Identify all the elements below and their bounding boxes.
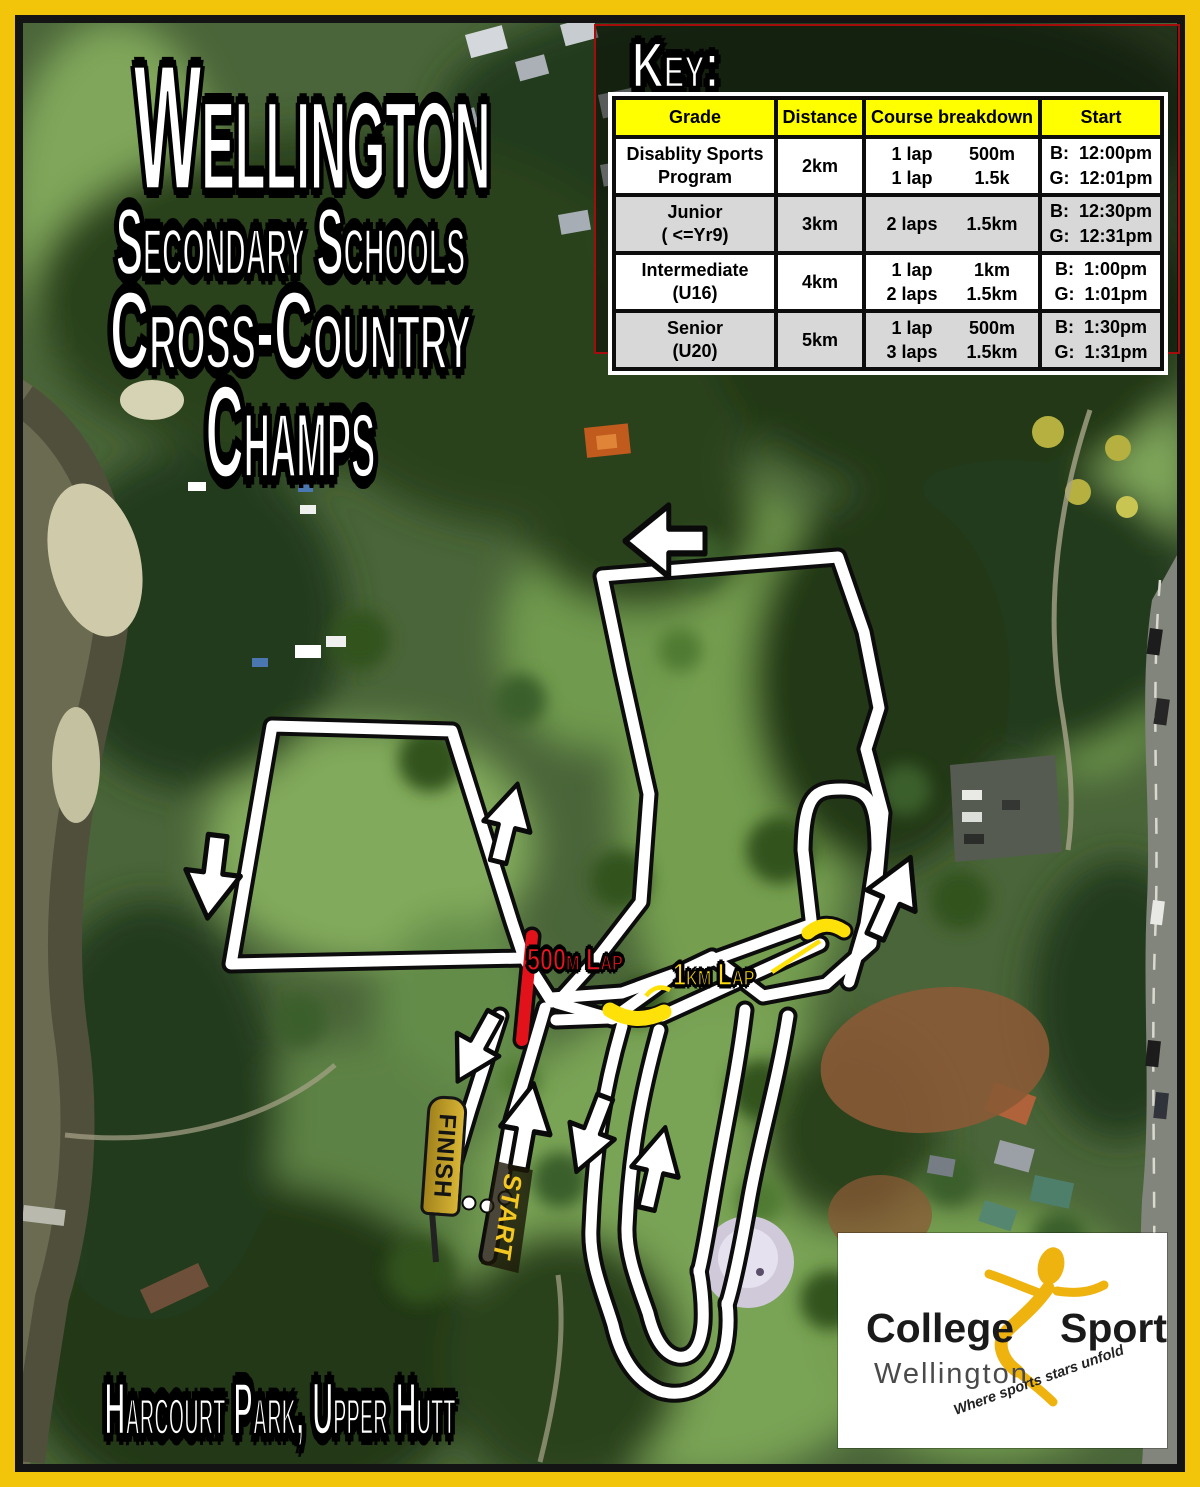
title-line-4: Champs — [106, 358, 475, 508]
autumn-tree — [1116, 496, 1138, 518]
key-table-row: Junior( <=Yr9)3km2 laps1.5kmB:12:30pmG:1… — [616, 197, 1160, 251]
distance-cell: 4km — [778, 255, 862, 309]
logo-word-sport: Sport — [1060, 1305, 1167, 1351]
lap-1km-segment — [808, 925, 844, 933]
parking-lot — [950, 755, 1062, 862]
logo-word-college: College — [866, 1305, 1014, 1351]
breakdown-cell: 2 laps1.5km — [866, 197, 1038, 251]
column-header-breakdown: Course breakdown — [866, 100, 1038, 135]
breakdown-cell: 1 lap1km2 laps1.5km — [866, 255, 1038, 309]
breakdown-cell: 1 lap500m1 lap1.5k — [866, 139, 1038, 193]
distance-cell: 5km — [778, 313, 862, 367]
grade-cell: Senior(U20) — [616, 313, 774, 367]
distance-cell: 3km — [778, 197, 862, 251]
key-table: Grade Distance Course breakdown Start Di… — [608, 92, 1168, 375]
autumn-tree — [1032, 416, 1064, 448]
lap-1km-label: 1km Lap — [673, 956, 755, 993]
distance-cell: 2km — [778, 139, 862, 193]
lap-500-label: 500m Lap — [527, 941, 623, 978]
lap-1km-segment — [610, 1010, 664, 1019]
key-table-row: Disablity SportsProgram2km1 lap500m1 lap… — [616, 139, 1160, 193]
grade-cell: Intermediate(U16) — [616, 255, 774, 309]
grade-cell: Disablity SportsProgram — [616, 139, 774, 193]
venue-name: Harcourt Park, Upper Hutt — [104, 1366, 435, 1452]
start-cell: B:12:00pmG:12:01pm — [1042, 139, 1160, 193]
start-cell: B:1:00pmG:1:01pm — [1042, 255, 1160, 309]
breakdown-cell: 1 lap500m3 laps1.5km — [866, 313, 1038, 367]
key-table-header-row: Grade Distance Course breakdown Start — [616, 100, 1160, 135]
finish-banner: FINISH — [420, 1095, 468, 1217]
key-panel: Key: Grade Distance Course breakdown Sta… — [594, 24, 1180, 354]
key-table-body: Disablity SportsProgram2km1 lap500m1 lap… — [616, 139, 1160, 367]
column-header-start: Start — [1042, 100, 1160, 135]
column-header-distance: Distance — [778, 100, 862, 135]
college-sport-logo: College Sport Wellington Where sports st… — [838, 1233, 1167, 1448]
college-sport-logo-graphic: College Sport Wellington Where sports st… — [838, 1233, 1167, 1448]
grade-cell: Junior( <=Yr9) — [616, 197, 774, 251]
start-cell: B:12:30pmG:12:31pm — [1042, 197, 1160, 251]
start-cell: B:1:30pmG:1:31pm — [1042, 313, 1160, 367]
column-header-grade: Grade — [616, 100, 774, 135]
key-table-row: Senior(U20)5km1 lap500m3 laps1.5kmB:1:30… — [616, 313, 1160, 367]
autumn-tree — [1105, 435, 1131, 461]
poster: Wellington Secondary Schools Cross-Count… — [0, 0, 1200, 1487]
finish-flag-pole — [432, 1212, 436, 1262]
key-table-row: Intermediate(U16)4km1 lap1km2 laps1.5kmB… — [616, 255, 1160, 309]
